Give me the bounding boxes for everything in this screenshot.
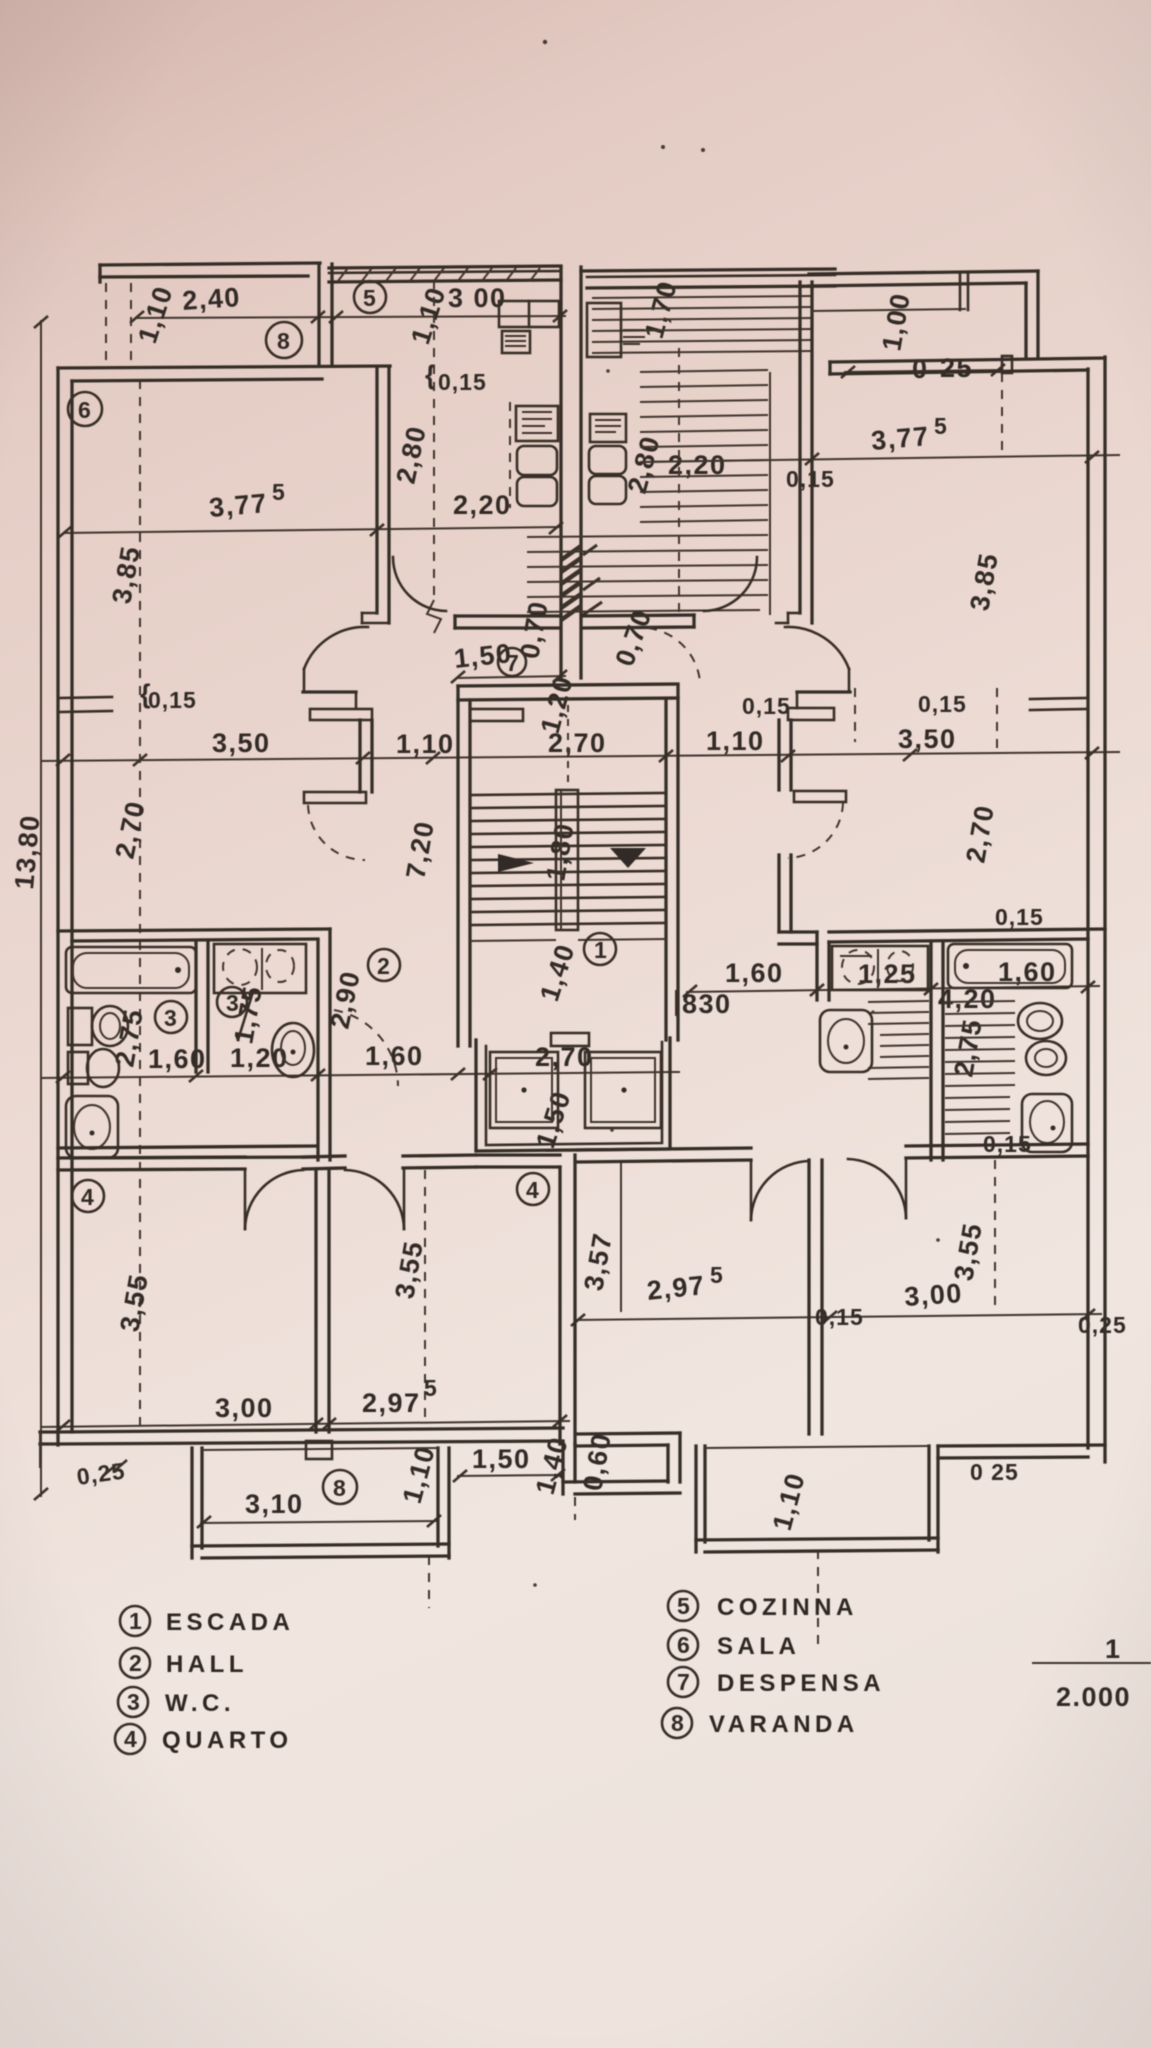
svg-text:1,10: 1,10 <box>396 729 455 759</box>
svg-text:3: 3 <box>164 1005 177 1031</box>
svg-text:1: 1 <box>1105 1634 1122 1664</box>
svg-text:1,25: 1,25 <box>858 959 917 989</box>
svg-text:8: 8 <box>277 328 290 354</box>
svg-text:5: 5 <box>272 479 286 505</box>
svg-text:{: { <box>425 360 437 390</box>
svg-text:0,15: 0,15 <box>742 693 791 719</box>
svg-text:2,40: 2,40 <box>181 282 242 316</box>
svg-text:4: 4 <box>526 1177 539 1203</box>
svg-text:4: 4 <box>81 1184 94 1210</box>
svg-text:3,00: 3,00 <box>215 1393 274 1423</box>
svg-text:2.000: 2.000 <box>1056 1682 1131 1712</box>
svg-text:HALL: HALL <box>166 1651 248 1678</box>
svg-text:3: 3 <box>127 1689 140 1715</box>
svg-text:2,97: 2,97 <box>645 1270 706 1306</box>
svg-text:SALA: SALA <box>717 1633 800 1660</box>
svg-text:0,15: 0,15 <box>148 687 197 713</box>
svg-text:5: 5 <box>934 413 948 439</box>
svg-text:3,00: 3,00 <box>903 1278 964 1312</box>
svg-text:7: 7 <box>677 1669 690 1695</box>
svg-text:4: 4 <box>124 1726 137 1752</box>
svg-text:5: 5 <box>710 1262 724 1288</box>
svg-text:0 25: 0 25 <box>970 1459 1019 1485</box>
svg-text:8: 8 <box>671 1710 684 1736</box>
svg-text:2,20: 2,20 <box>453 490 512 520</box>
svg-text:1,50: 1,50 <box>472 1444 531 1474</box>
svg-text:25: 25 <box>940 353 973 383</box>
svg-text:3,77: 3,77 <box>208 488 269 523</box>
svg-text:1,60: 1,60 <box>365 1041 424 1071</box>
svg-text:3,50: 3,50 <box>212 728 271 758</box>
svg-text:2,97: 2,97 <box>362 1388 421 1418</box>
svg-text:0,15: 0,15 <box>438 369 487 395</box>
svg-text:5: 5 <box>424 1375 438 1401</box>
svg-text:6: 6 <box>677 1632 690 1658</box>
svg-text:{: { <box>140 679 152 709</box>
svg-text:W.C.: W.C. <box>165 1690 235 1717</box>
svg-text:0: 0 <box>912 354 929 384</box>
svg-text:ESCADA: ESCADA <box>166 1609 294 1636</box>
svg-text:VARANDA: VARANDA <box>709 1711 859 1738</box>
svg-text:1,60: 1,60 <box>148 1044 207 1074</box>
svg-text:1: 1 <box>594 937 607 963</box>
svg-text:1,60: 1,60 <box>725 958 784 988</box>
svg-text:0,25: 0,25 <box>1078 1312 1127 1338</box>
svg-text:6: 6 <box>78 397 91 423</box>
svg-text:3,10: 3,10 <box>245 1489 304 1519</box>
svg-text:5: 5 <box>677 1593 690 1619</box>
svg-text:2: 2 <box>129 1650 142 1676</box>
svg-text:7: 7 <box>506 650 519 676</box>
svg-text:830: 830 <box>682 989 732 1019</box>
svg-text:DESPENSA: DESPENSA <box>717 1670 885 1697</box>
svg-text:3,50: 3,50 <box>898 724 957 754</box>
svg-text:COZINNA: COZINNA <box>717 1594 858 1621</box>
svg-text:1: 1 <box>129 1608 142 1634</box>
svg-text:0,15: 0,15 <box>918 691 967 717</box>
svg-text:0,15: 0,15 <box>995 904 1044 930</box>
svg-text:1,50: 1,50 <box>452 638 513 674</box>
svg-text:8: 8 <box>333 1475 346 1501</box>
svg-text:1,20: 1,20 <box>230 1043 289 1073</box>
svg-text:3,77: 3,77 <box>870 421 931 456</box>
svg-text:2: 2 <box>377 953 390 979</box>
svg-text:QUARTO: QUARTO <box>162 1727 293 1754</box>
svg-text:5: 5 <box>363 285 376 311</box>
svg-text:1,10: 1,10 <box>706 726 765 756</box>
svg-text:3: 3 <box>226 990 239 1016</box>
